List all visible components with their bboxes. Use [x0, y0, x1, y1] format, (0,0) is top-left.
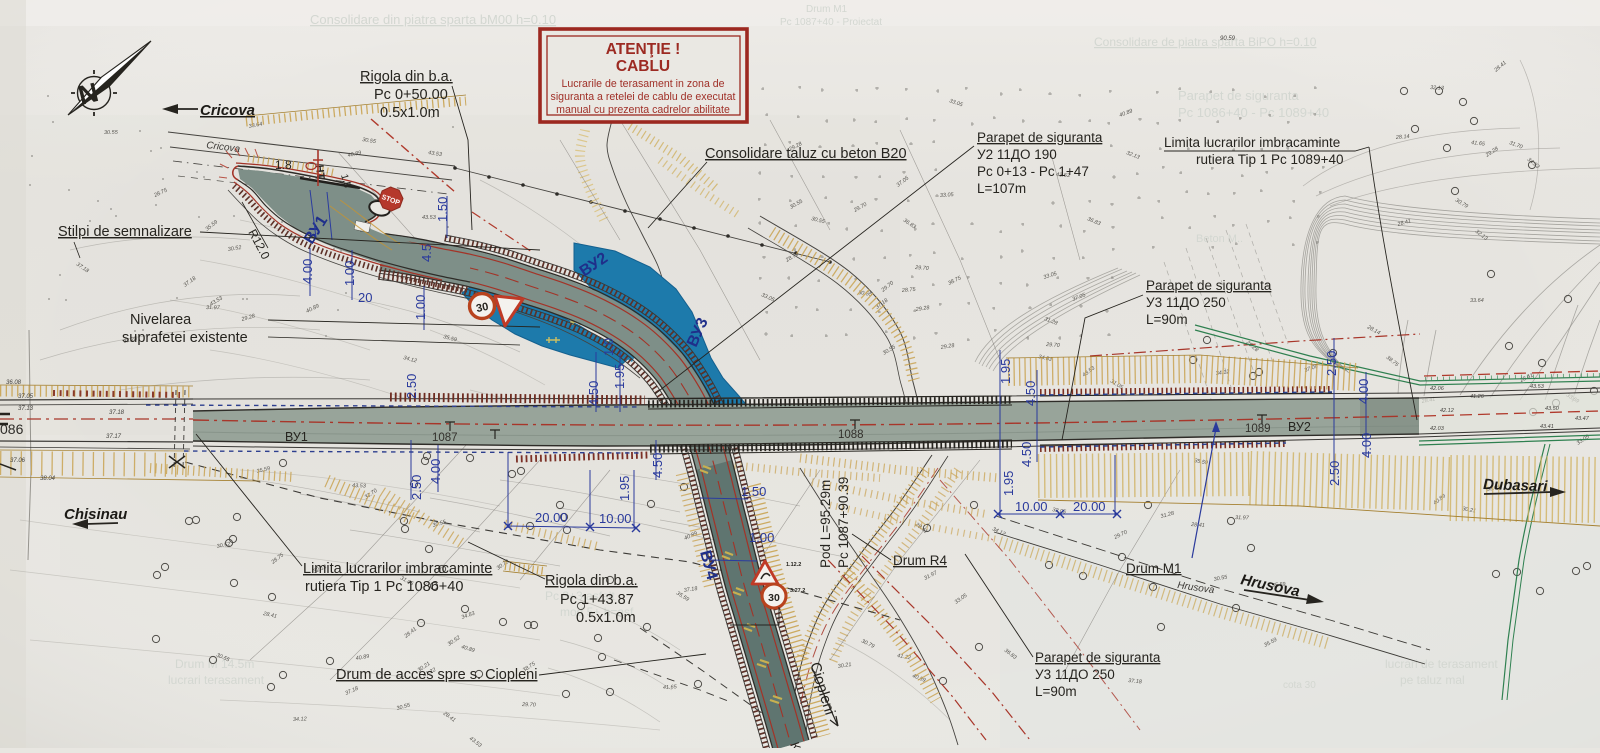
svg-text:ATENŢIE !: ATENŢIE !	[606, 41, 681, 58]
svg-text:siguranta a retelei de cablu d: siguranta a retelei de cablu de executat	[551, 91, 736, 103]
svg-text:20.00: 20.00	[535, 510, 568, 525]
svg-text:L=90m: L=90m	[1035, 684, 1077, 699]
svg-text:lucrari de terasament: lucrari de terasament	[1385, 657, 1498, 671]
svg-text:1.95: 1.95	[998, 359, 1013, 384]
svg-text:30: 30	[475, 301, 489, 315]
svg-text:Pc 1087+90.39: Pc 1087+90.39	[836, 477, 851, 568]
svg-text:Consolidare taluz cu beton B20: Consolidare taluz cu beton B20	[705, 146, 907, 162]
svg-text:Consolidare de piatra sparta B: Consolidare de piatra sparta BiPO h=0.10	[1094, 35, 1317, 49]
svg-text:3.27.2: 3.27.2	[790, 588, 805, 594]
svg-text:1.00: 1.00	[749, 530, 774, 545]
svg-text:Limita lucrarilor imbracamint: Limita lucrarilor imbracaminte	[1164, 135, 1340, 150]
svg-text:cota 30: cota 30	[1283, 680, 1316, 691]
svg-text:manual cu prezenta cadrelor ab: manual cu prezenta cadrelor abilitate	[556, 104, 730, 116]
svg-text:Parapet de siguranta: Parapet de siguranta	[1035, 650, 1161, 665]
svg-text:29.70: 29.70	[1045, 342, 1061, 349]
svg-text:33.05: 33.05	[940, 192, 955, 199]
svg-text:Drum M1: Drum M1	[1126, 561, 1182, 576]
svg-text:30.55: 30.55	[104, 130, 119, 136]
svg-text:1.50: 1.50	[435, 197, 450, 222]
svg-text:1.8: 1.8	[275, 158, 292, 172]
svg-text:28.14: 28.14	[1395, 134, 1410, 141]
svg-text:Drum M1: Drum M1	[806, 4, 848, 15]
svg-text:31.97: 31.97	[1235, 515, 1250, 522]
svg-text:42.06: 42.06	[1430, 386, 1445, 392]
svg-text:Pc 1086+40 - Pc 1089+40: Pc 1086+40 - Pc 1089+40	[1178, 105, 1329, 120]
svg-text:Pc 0+50.00: Pc 0+50.00	[374, 87, 448, 103]
svg-text:10.00: 10.00	[599, 511, 632, 526]
svg-text:37.05: 37.05	[18, 394, 34, 400]
svg-text:42.03: 42.03	[1430, 426, 1445, 432]
svg-text:У2 11ДО 190: У2 11ДО 190	[977, 147, 1057, 162]
svg-text:1088: 1088	[838, 429, 864, 441]
svg-text:rutiera Tip 1 Pc 1089+40: rutiera Tip 1 Pc 1089+40	[1196, 152, 1343, 167]
svg-text:42.12: 42.12	[1440, 408, 1454, 414]
svg-text:20: 20	[358, 290, 372, 305]
svg-text:34.12: 34.12	[293, 716, 307, 723]
svg-text:1.12.2: 1.12.2	[786, 562, 801, 568]
svg-text:Cricova: Cricova	[200, 102, 255, 119]
svg-text:41.65: 41.65	[663, 684, 678, 691]
svg-text:37.17: 37.17	[106, 434, 122, 440]
svg-text:1087: 1087	[432, 432, 458, 444]
svg-text:0.5x1.0m: 0.5x1.0m	[576, 610, 636, 626]
svg-text:30: 30	[768, 592, 780, 604]
svg-text:29.70: 29.70	[521, 702, 537, 709]
svg-text:HT: HT	[313, 164, 326, 180]
svg-text:32.13: 32.13	[1430, 85, 1445, 92]
svg-text:20.00: 20.00	[1073, 499, 1106, 514]
svg-text:38.04: 38.04	[40, 476, 56, 482]
svg-text:L=107m: L=107m	[977, 181, 1026, 196]
svg-text:Drum de acces spre s. Ciopleni: Drum de acces spre s. Ciopleni	[336, 667, 537, 683]
svg-text:L=90m: L=90m	[1146, 312, 1188, 327]
svg-text:29.70: 29.70	[914, 265, 930, 272]
svg-text:0.5x1.0m: 0.5x1.0m	[380, 105, 440, 121]
svg-text:Pc 1+43.87: Pc 1+43.87	[560, 592, 634, 608]
svg-text:Pc 0+13 - Pc 1+47: Pc 0+13 - Pc 1+47	[977, 164, 1089, 179]
svg-text:37.18: 37.18	[109, 410, 125, 416]
svg-text:4.00: 4.00	[1359, 433, 1374, 458]
svg-text:Pc 1087+40 - Proiectat: Pc 1087+40 - Proiectat	[780, 17, 882, 28]
svg-text:Pod L=95.29m: Pod L=95.29m	[818, 480, 833, 568]
svg-text:43.53: 43.53	[1530, 384, 1545, 390]
svg-text:90.59: 90.59	[1220, 36, 1236, 42]
svg-text:suprafetei existente: suprafetei existente	[122, 330, 248, 346]
svg-text:Rigola din b.a.: Rigola din b.a.	[545, 573, 638, 589]
svg-text:Stilpi de semnalizare: Stilpi de semnalizare	[58, 224, 192, 240]
svg-text:2.50: 2.50	[404, 374, 419, 399]
svg-text:43.47: 43.47	[1575, 416, 1590, 422]
svg-text:1.50: 1.50	[741, 484, 766, 499]
svg-text:4.00: 4.00	[1356, 379, 1371, 404]
svg-text:Parapet de siguranta: Parapet de siguranta	[977, 130, 1103, 145]
svg-text:33.64: 33.64	[1470, 298, 1484, 304]
svg-text:4.50: 4.50	[1019, 442, 1034, 467]
svg-text:Drum R4: Drum R4	[893, 553, 947, 568]
svg-text:Nivelarea: Nivelarea	[130, 312, 192, 328]
svg-text:4.50: 4.50	[586, 381, 601, 406]
svg-text:1.95: 1.95	[617, 476, 632, 501]
svg-text:Lucrarile de terasament in zon: Lucrarile de terasament in zona de	[561, 78, 724, 90]
svg-text:У3 11ДО 250: У3 11ДО 250	[1146, 295, 1226, 310]
svg-text:Consolidare din piatra sparta: Consolidare din piatra sparta bM00 h=0.1…	[310, 12, 556, 27]
svg-text:rutiera Tip 1 Pc 1086+40: rutiera Tip 1 Pc 1086+40	[305, 579, 463, 595]
svg-text:1.0: 1.0	[601, 338, 616, 356]
svg-text:4.00: 4.00	[428, 459, 443, 484]
svg-text:Limita lucrarilor imbracamint: Limita lucrarilor imbracaminte	[303, 561, 492, 577]
svg-text:1.95: 1.95	[1001, 471, 1016, 496]
svg-text:2.50: 2.50	[1324, 351, 1339, 376]
svg-text:ВУ2: ВУ2	[1288, 420, 1311, 434]
svg-text:Parapet de siguranta: Parapet de siguranta	[1146, 278, 1272, 293]
svg-text:4.5: 4.5	[419, 244, 434, 262]
svg-text:CABLU: CABLU	[616, 58, 670, 75]
svg-text:4.50: 4.50	[1023, 381, 1038, 406]
svg-text:10.00: 10.00	[1015, 499, 1048, 514]
svg-text:ВУ1: ВУ1	[285, 430, 308, 444]
svg-text:1.00: 1.00	[342, 261, 357, 286]
svg-text:Drum M 14.5m: Drum M 14.5m	[175, 657, 254, 671]
svg-text:41.26: 41.26	[1470, 394, 1485, 400]
svg-text:37.06: 37.06	[10, 458, 26, 464]
svg-text:Rigola din b.a.: Rigola din b.a.	[360, 69, 453, 85]
svg-text:2.50: 2.50	[409, 475, 424, 500]
svg-text:Parapet de siguranta: Parapet de siguranta	[1178, 88, 1299, 103]
svg-text:1.00: 1.00	[413, 295, 428, 320]
svg-text:2.50: 2.50	[1327, 461, 1342, 486]
svg-text:4.00: 4.00	[300, 259, 315, 284]
svg-text:1.95: 1.95	[612, 364, 627, 389]
svg-text:36.08: 36.08	[6, 380, 22, 386]
svg-text:43.50: 43.50	[1545, 406, 1560, 412]
svg-text:Chisinau: Chisinau	[64, 506, 127, 523]
svg-text:lucrari terasament: lucrari terasament	[168, 673, 265, 687]
svg-text:1089: 1089	[1245, 423, 1271, 435]
svg-text:У3 11ДО 250: У3 11ДО 250	[1035, 667, 1115, 682]
svg-text:4.50: 4.50	[650, 453, 665, 478]
svg-text:37.13: 37.13	[18, 406, 34, 412]
svg-text:pe taluz mal: pe taluz mal	[1400, 673, 1465, 687]
